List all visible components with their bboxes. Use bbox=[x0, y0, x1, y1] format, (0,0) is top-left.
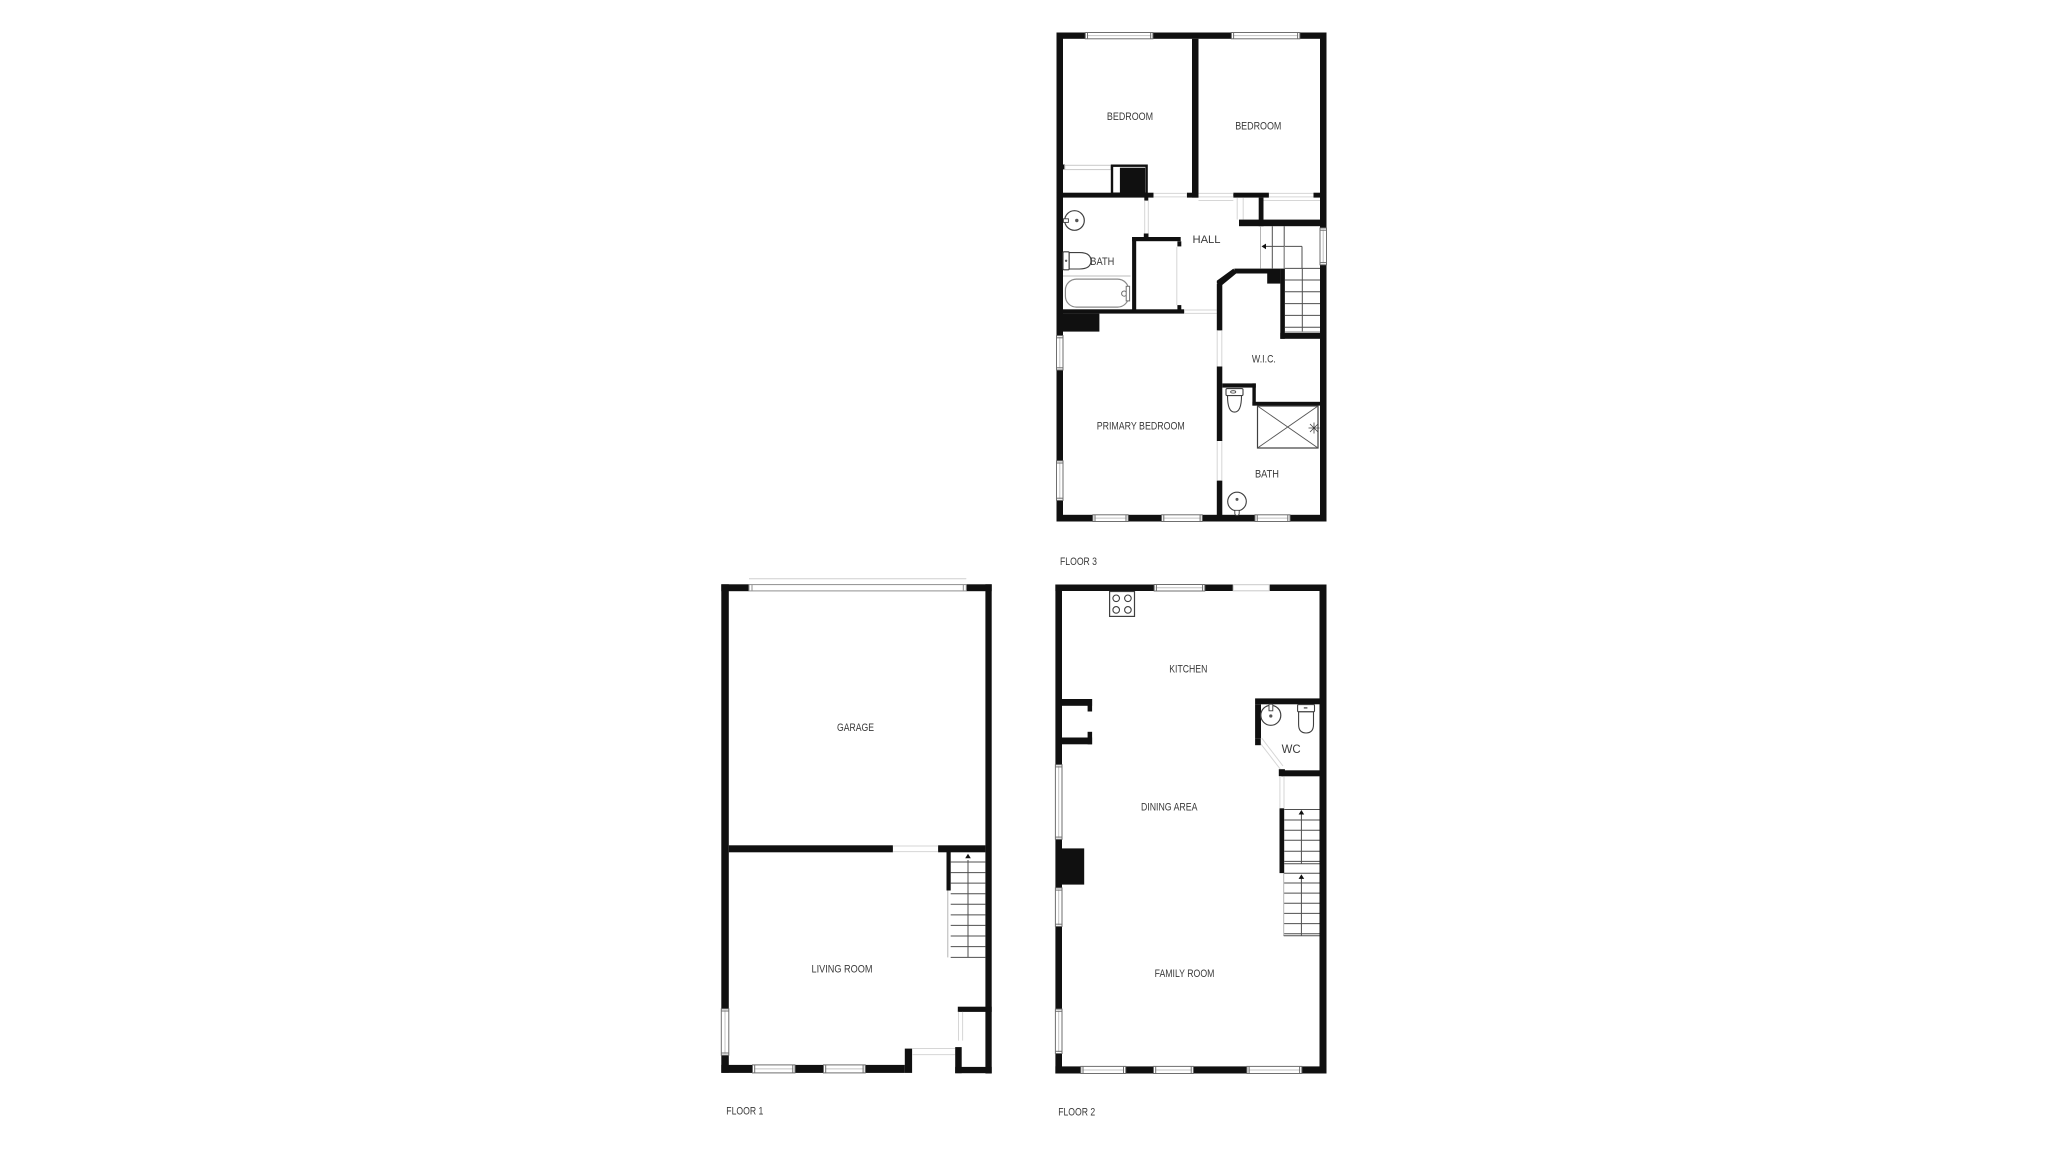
svg-text:LIVING ROOM: LIVING ROOM bbox=[812, 963, 873, 975]
svg-text:KITCHEN: KITCHEN bbox=[1169, 663, 1207, 675]
svg-text:FLOOR 1: FLOOR 1 bbox=[726, 1106, 763, 1118]
svg-text:GARAGE: GARAGE bbox=[837, 722, 874, 734]
svg-text:DINING AREA: DINING AREA bbox=[1141, 802, 1198, 814]
svg-text:PRIMARY BEDROOM: PRIMARY BEDROOM bbox=[1097, 420, 1185, 432]
svg-text:BATH: BATH bbox=[1255, 469, 1279, 481]
svg-text:W.I.C.: W.I.C. bbox=[1252, 353, 1276, 365]
svg-text:BEDROOM: BEDROOM bbox=[1235, 121, 1281, 133]
svg-text:FAMILY ROOM: FAMILY ROOM bbox=[1155, 968, 1215, 980]
svg-text:BEDROOM: BEDROOM bbox=[1107, 111, 1153, 123]
svg-text:HALL: HALL bbox=[1193, 234, 1221, 246]
svg-text:WC: WC bbox=[1282, 742, 1301, 756]
svg-text:BATH: BATH bbox=[1090, 256, 1114, 268]
svg-text:FLOOR 3: FLOOR 3 bbox=[1060, 556, 1097, 568]
svg-text:FLOOR 2: FLOOR 2 bbox=[1058, 1107, 1095, 1119]
